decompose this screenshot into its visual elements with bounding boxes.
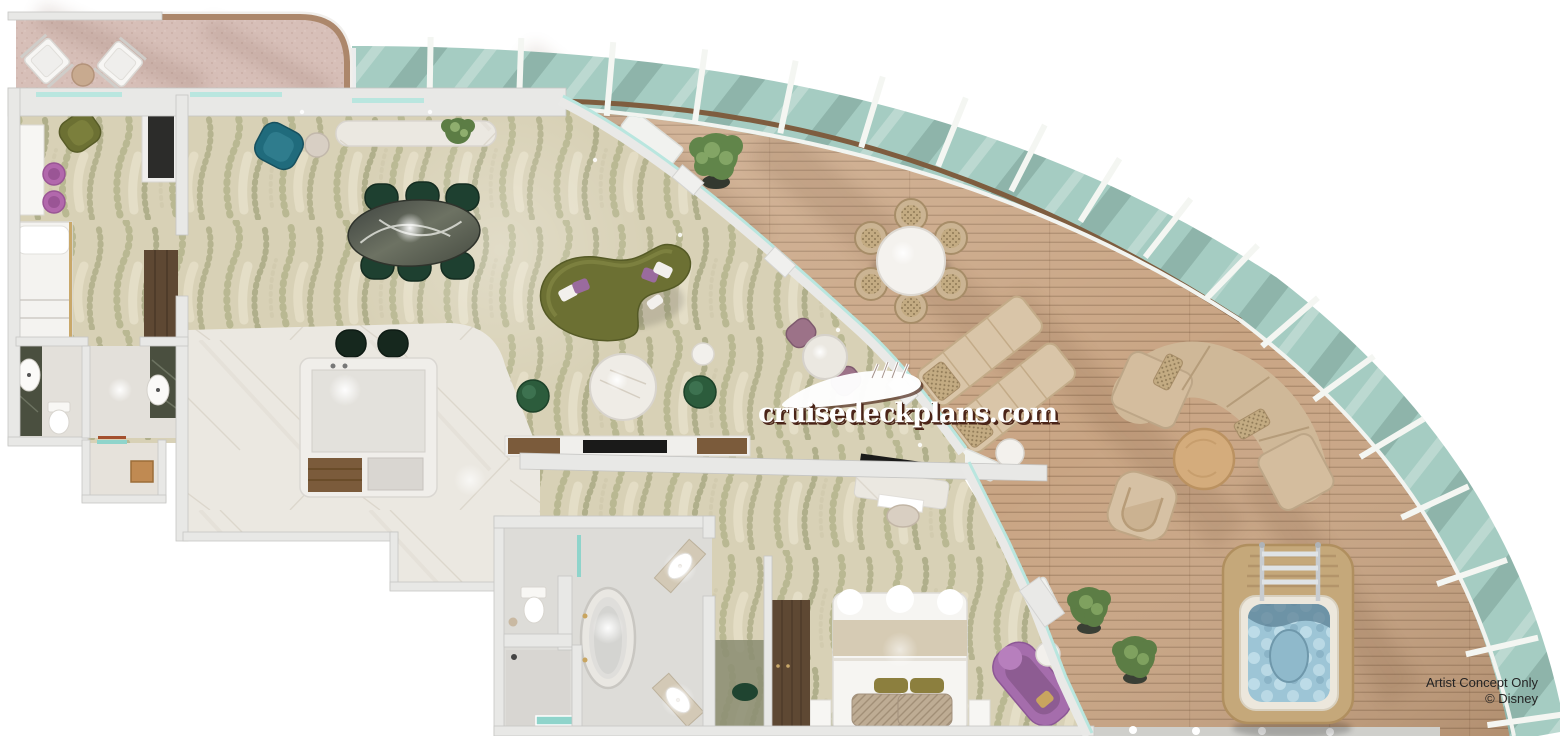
tv-screen (583, 440, 667, 453)
attribution-line-2: © Disney (1392, 691, 1538, 707)
deck-side-table (996, 439, 1024, 467)
floor-plan-rendering (0, 0, 1560, 736)
toilet (48, 402, 70, 434)
master-bath-top-wall (494, 516, 715, 528)
side-table (305, 133, 329, 157)
left-wall (8, 88, 20, 445)
wardrobe (144, 250, 178, 340)
watermark-text: cruisedeckplans.com (758, 398, 978, 429)
kitchen-island (300, 358, 437, 497)
guest-room-divider-wall (176, 95, 188, 235)
side-table (692, 343, 714, 365)
veranda-side-table (72, 64, 94, 86)
guest-bath-wall (16, 337, 88, 346)
outdoor-coffee-table (1174, 429, 1234, 489)
master-bath-left-wall (494, 516, 504, 736)
suite-floor-plan-image: cruisedeckplans.com Artist Concept Only … (0, 0, 1560, 736)
shower (506, 650, 578, 727)
walk-in-closet (772, 600, 810, 733)
bottom-wall (494, 726, 1094, 736)
private-veranda (8, 2, 350, 101)
hot-tub (1223, 542, 1353, 736)
closet-wall (764, 556, 772, 733)
desk-stool (887, 505, 919, 527)
media-console (505, 436, 750, 456)
attribution: Artist Concept Only © Disney (1392, 675, 1538, 707)
closet-pouf (732, 683, 758, 701)
attribution-line-1: Artist Concept Only (1392, 675, 1538, 691)
single-bed (14, 222, 72, 340)
entry-door-mat (131, 461, 153, 482)
